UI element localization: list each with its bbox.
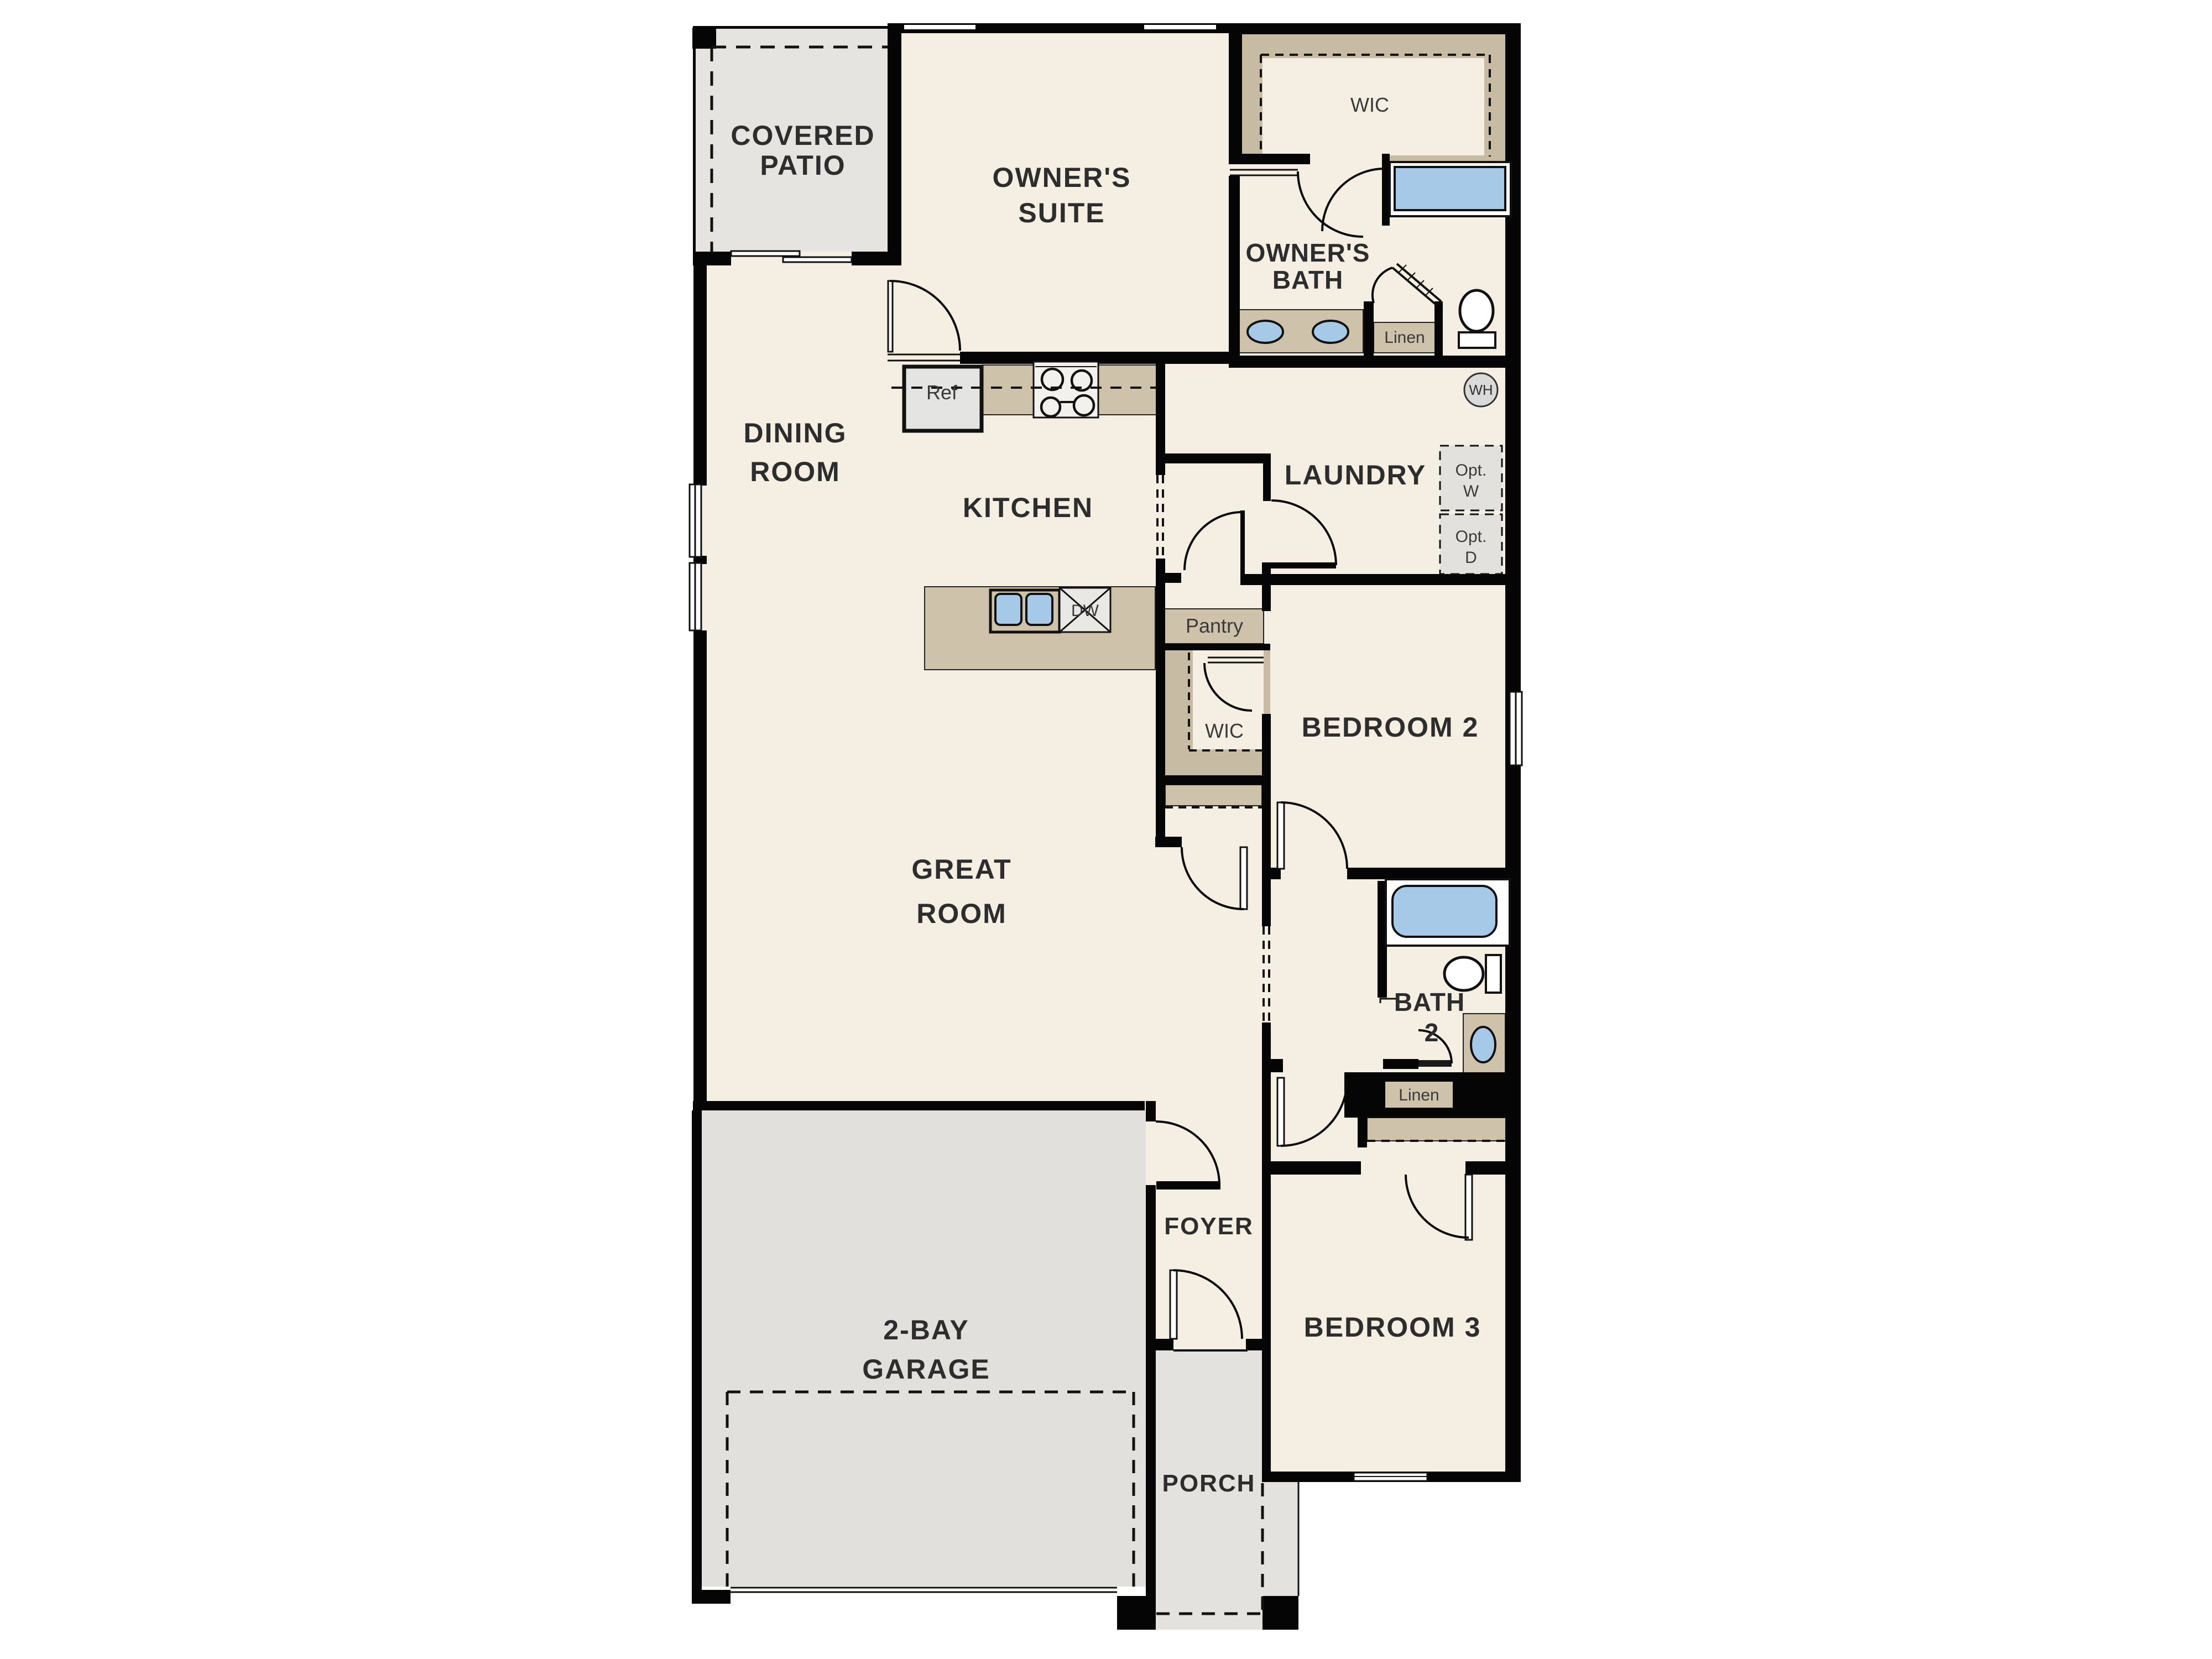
svg-text:WIC: WIC: [1350, 93, 1389, 116]
svg-text:Linen: Linen: [1384, 328, 1425, 347]
svg-text:OWNER'S: OWNER'S: [1246, 238, 1370, 267]
svg-text:BEDROOM 3: BEDROOM 3: [1304, 1312, 1481, 1343]
svg-text:COVERED: COVERED: [731, 120, 875, 151]
svg-text:DINING: DINING: [744, 418, 847, 448]
svg-text:Opt.: Opt.: [1455, 461, 1487, 479]
svg-text:Linen: Linen: [1399, 1086, 1439, 1104]
svg-text:BEDROOM 2: BEDROOM 2: [1302, 712, 1479, 743]
svg-text:SUITE: SUITE: [1018, 197, 1105, 228]
svg-text:2-BAY: 2-BAY: [883, 1314, 969, 1345]
svg-text:D: D: [1465, 549, 1477, 567]
svg-text:PORCH: PORCH: [1162, 1470, 1256, 1497]
svg-text:KITCHEN: KITCHEN: [963, 492, 1093, 523]
svg-text:ROOM: ROOM: [750, 456, 841, 487]
svg-text:DW: DW: [1071, 602, 1099, 620]
svg-text:Pantry: Pantry: [1186, 614, 1243, 637]
svg-text:GARAGE: GARAGE: [862, 1354, 990, 1385]
svg-text:LAUNDRY: LAUNDRY: [1285, 460, 1427, 491]
svg-text:BATH: BATH: [1394, 988, 1465, 1016]
svg-text:Opt.: Opt.: [1455, 528, 1487, 546]
svg-text:ROOM: ROOM: [916, 898, 1007, 929]
svg-text:W: W: [1463, 482, 1479, 500]
svg-text:Ref: Ref: [926, 381, 958, 404]
svg-text:OWNER'S: OWNER'S: [993, 162, 1131, 193]
svg-text:2: 2: [1425, 1018, 1439, 1047]
svg-text:BATH: BATH: [1272, 265, 1343, 294]
svg-text:FOYER: FOYER: [1164, 1213, 1254, 1240]
svg-text:PATIO: PATIO: [760, 150, 846, 181]
svg-text:WIC: WIC: [1205, 719, 1244, 742]
svg-text:WH: WH: [1469, 382, 1493, 398]
svg-text:GREAT: GREAT: [911, 854, 1011, 885]
